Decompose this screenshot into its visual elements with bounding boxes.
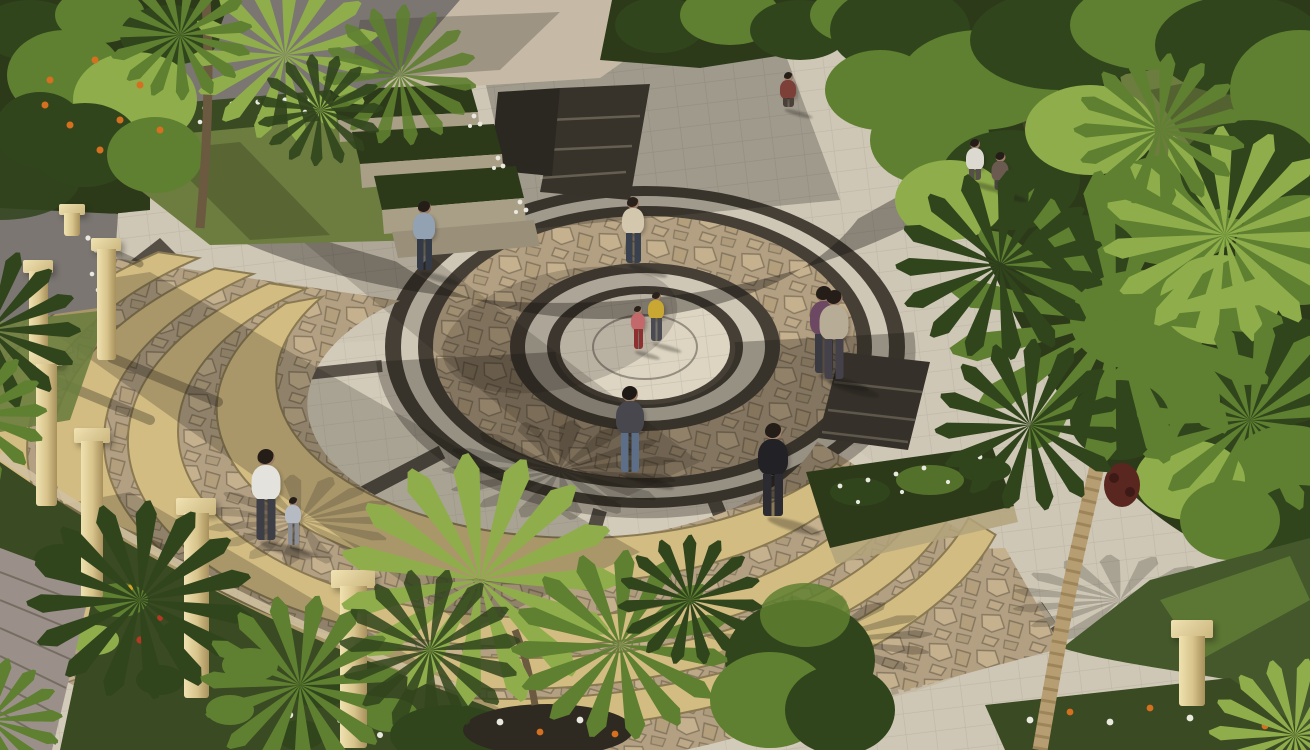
amphitheater-plaza-render — [0, 0, 1310, 750]
background-scene — [0, 0, 1310, 750]
